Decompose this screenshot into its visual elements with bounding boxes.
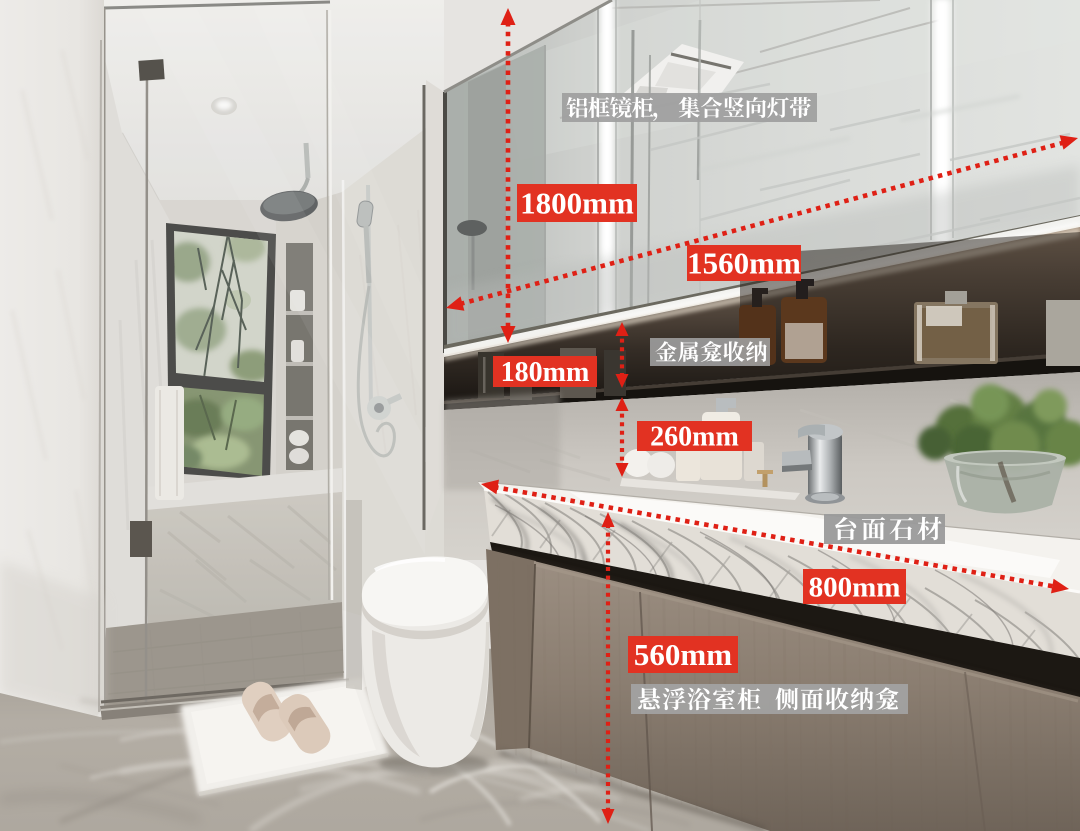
svg-text:560mm: 560mm	[634, 637, 732, 672]
svg-text:260mm: 260mm	[650, 422, 739, 453]
svg-text:1800mm: 1800mm	[520, 186, 634, 221]
svg-text:800mm: 800mm	[809, 572, 901, 604]
svg-text:1560mm: 1560mm	[687, 246, 801, 281]
svg-text:180mm: 180mm	[501, 357, 590, 388]
